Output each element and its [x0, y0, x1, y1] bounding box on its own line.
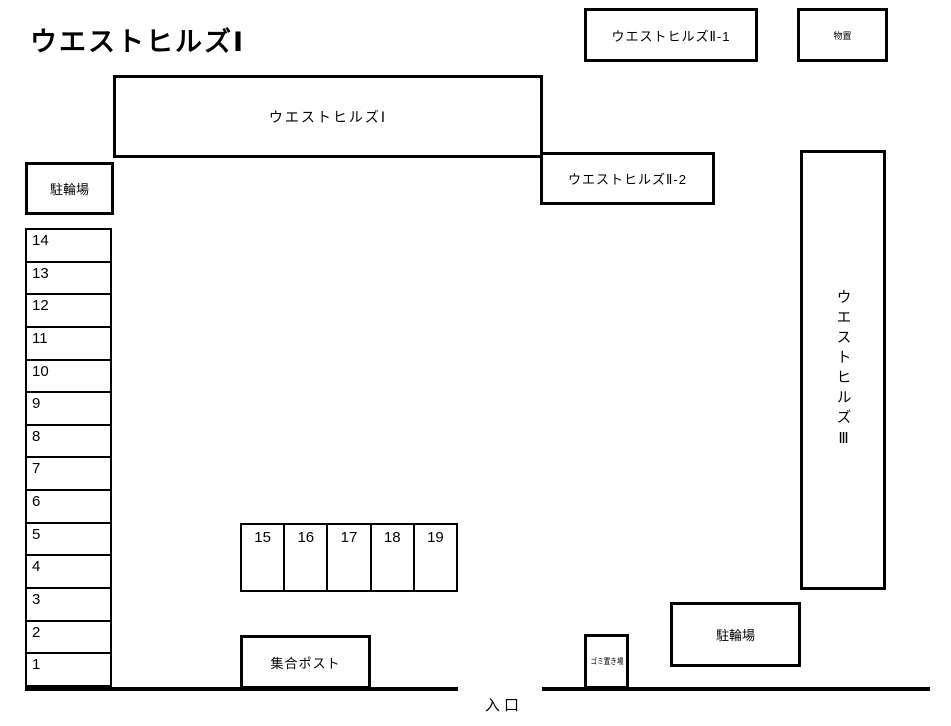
entrance-label: 入口 — [468, 694, 540, 715]
page-title: ウエストヒルズⅠ — [30, 20, 245, 59]
parking-space: 14 — [27, 230, 110, 263]
bicycle-parking-lower-label: 駐輪場 — [716, 625, 755, 644]
boundary-line-right — [542, 687, 930, 691]
parking-space-number: 4 — [32, 558, 40, 575]
parking-space-number: 18 — [384, 529, 401, 546]
parking-space-number: 6 — [32, 493, 40, 510]
parking-space-number: 8 — [32, 428, 40, 445]
parking-space: 19 — [415, 525, 456, 590]
parking-space: 1 — [27, 654, 110, 685]
parking-space: 15 — [242, 525, 285, 590]
mail-post-label: 集合ポスト — [270, 653, 340, 672]
storage-shed-label: 物置 — [833, 29, 851, 42]
parking-space: 12 — [27, 295, 110, 328]
building-west-hills-2-1: ウエストヒルズⅡ-1 — [584, 8, 758, 62]
parking-row-middle: 15 16 17 18 19 — [240, 523, 458, 592]
parking-space-number: 19 — [427, 529, 444, 546]
parking-space-number: 2 — [32, 624, 40, 641]
parking-space-number: 16 — [297, 529, 314, 546]
parking-space: 10 — [27, 361, 110, 394]
building-west-hills-1-label: ウエストヒルズⅠ — [269, 107, 387, 127]
bicycle-parking-lower: 駐輪場 — [670, 602, 801, 667]
parking-space: 7 — [27, 458, 110, 491]
parking-space: 8 — [27, 426, 110, 459]
building-west-hills-1: ウエストヒルズⅠ — [113, 75, 543, 158]
parking-space-number: 3 — [32, 591, 40, 608]
garbage-area: ゴミ置き場 — [584, 634, 629, 689]
parking-space: 5 — [27, 524, 110, 557]
parking-space: 6 — [27, 491, 110, 524]
bicycle-parking-upper-label: 駐輪場 — [50, 179, 89, 198]
parking-space-number: 5 — [32, 526, 40, 543]
parking-space-number: 15 — [254, 529, 271, 546]
parking-column-left: 14 13 12 11 10 9 8 7 6 5 4 3 2 1 — [25, 228, 112, 687]
parking-space: 11 — [27, 328, 110, 361]
parking-space-number: 9 — [32, 395, 40, 412]
building-west-hills-3-label: ウエストヒルズⅢ — [836, 289, 851, 452]
boundary-line-left — [25, 687, 458, 691]
mail-post-box: 集合ポスト — [240, 635, 371, 689]
storage-shed: 物置 — [797, 8, 888, 62]
parking-space: 4 — [27, 556, 110, 589]
parking-space: 3 — [27, 589, 110, 622]
parking-space-number: 7 — [32, 460, 40, 477]
parking-space-number: 17 — [341, 529, 358, 546]
parking-space-number: 10 — [32, 363, 49, 380]
parking-space: 2 — [27, 622, 110, 655]
parking-space-number: 14 — [32, 232, 49, 249]
building-west-hills-2-2: ウエストヒルズⅡ-2 — [540, 152, 715, 205]
bicycle-parking-upper: 駐輪場 — [25, 162, 114, 215]
building-west-hills-3: ウエストヒルズⅢ — [800, 150, 886, 590]
garbage-area-label: ゴミ置き場 — [590, 656, 623, 667]
parking-space: 16 — [285, 525, 328, 590]
parking-space-number: 1 — [32, 656, 40, 673]
building-west-hills-2-1-label: ウエストヒルズⅡ-1 — [612, 26, 731, 45]
parking-space: 9 — [27, 393, 110, 426]
parking-space-number: 12 — [32, 297, 49, 314]
parking-space: 18 — [372, 525, 415, 590]
parking-space: 13 — [27, 263, 110, 296]
parking-space-number: 11 — [32, 330, 48, 347]
site-plan-canvas: ウエストヒルズⅠ ウエストヒルズⅡ-1 物置 ウエストヒルズⅠ 駐輪場 ウエスト… — [0, 0, 951, 726]
parking-space-number: 13 — [32, 265, 49, 282]
building-west-hills-2-2-label: ウエストヒルズⅡ-2 — [568, 169, 687, 188]
parking-space: 17 — [328, 525, 371, 590]
